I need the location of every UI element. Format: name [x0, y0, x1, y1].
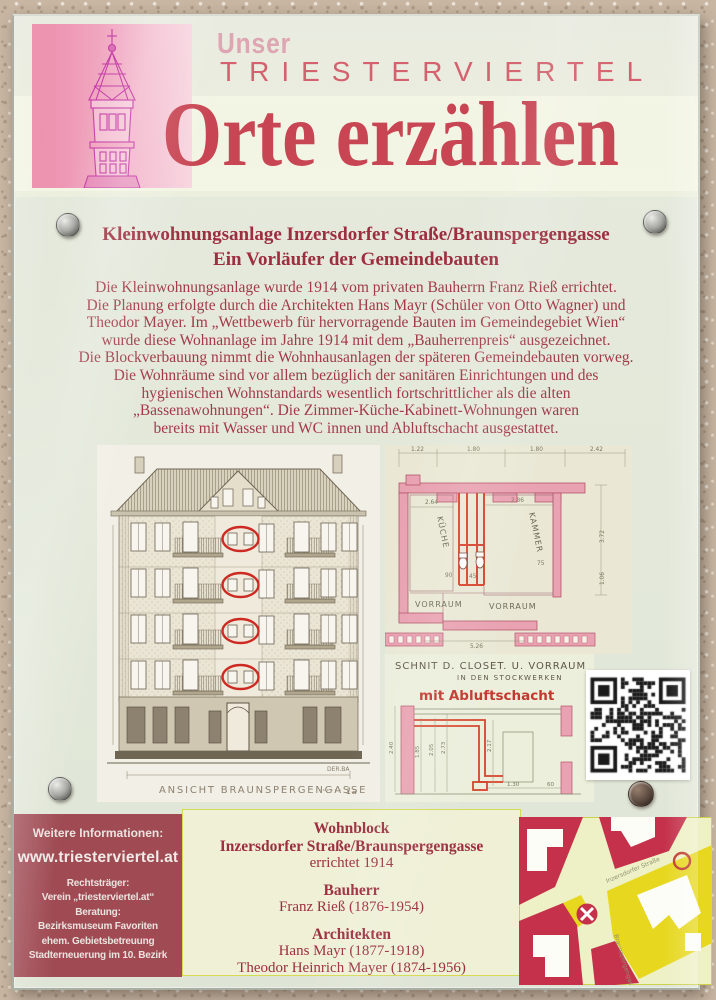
facade-drawing: DER.BA ANSICHT BRAUNSPERGENGASSE 1a	[97, 445, 380, 802]
plan-dim: 2.86	[511, 498, 524, 504]
plan-dim: 75	[537, 561, 545, 567]
detail-title-wohnblock: Wohnblock	[183, 820, 520, 838]
plan-dim: 1.80	[530, 447, 543, 453]
info-line: Verein „triesterviertel.at“	[14, 891, 182, 905]
screw-top-left	[56, 213, 80, 237]
qr-code	[586, 670, 690, 780]
detail-bauherr: Franz Rieß (1876-1954)	[183, 899, 520, 916]
section-title: SCHNIT D. CLOSET. U. VORRAUM	[395, 661, 586, 672]
section-dim: 60	[547, 782, 554, 788]
plaque-header: Unser TRIESTERVIERTEL Orte erzählen	[14, 16, 698, 197]
info-line: Bezirksmuseum Favoriten	[14, 920, 182, 934]
info-line: Stadterneuerung im 10. Bezirk	[14, 949, 182, 963]
plan-dim: 90	[445, 573, 453, 579]
section-highlight: mit Abluftschacht	[419, 688, 555, 704]
section-dim: 2.73	[441, 741, 447, 754]
body-line: Die Wohnräume sind vor allem bezüglich d…	[14, 367, 698, 385]
info-line: Rechtsträger:	[14, 877, 182, 891]
plan-dim: 45	[469, 574, 477, 580]
body-line: wurde diese Wohnanlage im Jahre 1914 mit…	[14, 332, 698, 350]
detail-architect-2: Theodor Heinrich Mayer (1874-1956)	[183, 960, 520, 977]
screw-top-right	[643, 210, 667, 234]
body-paragraph: Die Kleinwohnungsanlage wurde 1914 vom p…	[14, 279, 698, 437]
body-line: „Bassenawohnungen“. Die Zimmer-Küche-Kab…	[14, 402, 698, 420]
plan-dim: 1.22	[411, 447, 424, 453]
plan-dim: 2.42	[590, 447, 603, 453]
building-details: Wohnblock Inzersdorfer Straße/Braunsperg…	[182, 809, 521, 976]
section-subtitle: IN DEN STOCKWERKEN	[457, 674, 563, 682]
location-map: Inzersdorfer Straße Braunspergengasse	[519, 817, 712, 985]
detail-built-year: errichtet 1914	[183, 855, 520, 872]
body-line: Die Blockverbauung nimmt die Wohnhausanl…	[14, 349, 698, 367]
screw-bottom-left	[48, 777, 72, 801]
section-dim: 2.40	[389, 741, 395, 754]
detail-architect-1: Hans Mayr (1877-1918)	[183, 943, 520, 960]
info-label: Weitere Informationen:	[14, 826, 182, 840]
body-line: Theodor Mayer. Im „Wettbewerb für hervor…	[14, 314, 698, 332]
plan-dim: 5.26	[470, 644, 483, 650]
body-line: Die Kleinwohnungsanlage wurde 1914 vom p…	[14, 279, 698, 297]
wall-background: Unser TRIESTERVIERTEL Orte erzählen Klei…	[0, 0, 716, 1000]
heading-line-2: Ein Vorläufer der Gemeindebauten	[14, 247, 698, 272]
detail-title-architekten: Architekten	[183, 926, 520, 944]
facade-corner-note: DER.BA	[327, 766, 350, 773]
plaque-heading: Kleinwohnungsanlage Inzersdorfer Straße/…	[14, 222, 698, 272]
detail-address: Inzersdorfer Straße/Braunspergengasse	[183, 838, 520, 856]
info-line: ehem. Gebietsbetreuung	[14, 935, 182, 949]
plan-dim: 1.06	[600, 572, 606, 585]
facade-scale-note: 1a	[346, 787, 357, 797]
body-line: hygienischen Wohnstandards wesentlich fo…	[14, 385, 698, 403]
room-label-vorraum-2: VORRAUM	[489, 602, 537, 611]
section-dim: 2.05	[429, 743, 435, 756]
info-line: Beratung:	[14, 906, 182, 920]
section-dim: 1.85	[415, 745, 421, 758]
body-line: bereits mit Wasser und WC innen und Ablu…	[14, 420, 698, 438]
section-dim: 2.17	[487, 739, 493, 752]
website-url: www.triesterviertel.at	[14, 849, 182, 867]
floorplan-drawing: 1.22 1.80 1.80 2.42 2.64 2.86 3.72 90 45…	[385, 445, 632, 654]
heading-line-1: Kleinwohnungsanlage Inzersdorfer Straße/…	[14, 222, 698, 247]
plaque: Unser TRIESTERVIERTEL Orte erzählen Klei…	[12, 14, 700, 990]
room-label-vorraum-1: VORRAUM	[415, 600, 463, 609]
page-title: Orte erzählen	[162, 86, 619, 182]
body-line: Die Planung erfolgte durch die Architekt…	[14, 297, 698, 315]
detail-title-bauherr: Bauherr	[183, 882, 520, 900]
plan-dim: 1.80	[467, 447, 480, 453]
plan-dim: 2.64	[425, 500, 438, 506]
info-box: Weitere Informationen: www.triesterviert…	[14, 814, 182, 977]
section-dim: 1.30	[507, 782, 520, 788]
screw-bottom-right	[628, 781, 654, 807]
plan-dim: 3.72	[600, 530, 606, 543]
section-drawing: SCHNIT D. CLOSET. U. VORRAUM IN DEN STOC…	[385, 654, 594, 802]
